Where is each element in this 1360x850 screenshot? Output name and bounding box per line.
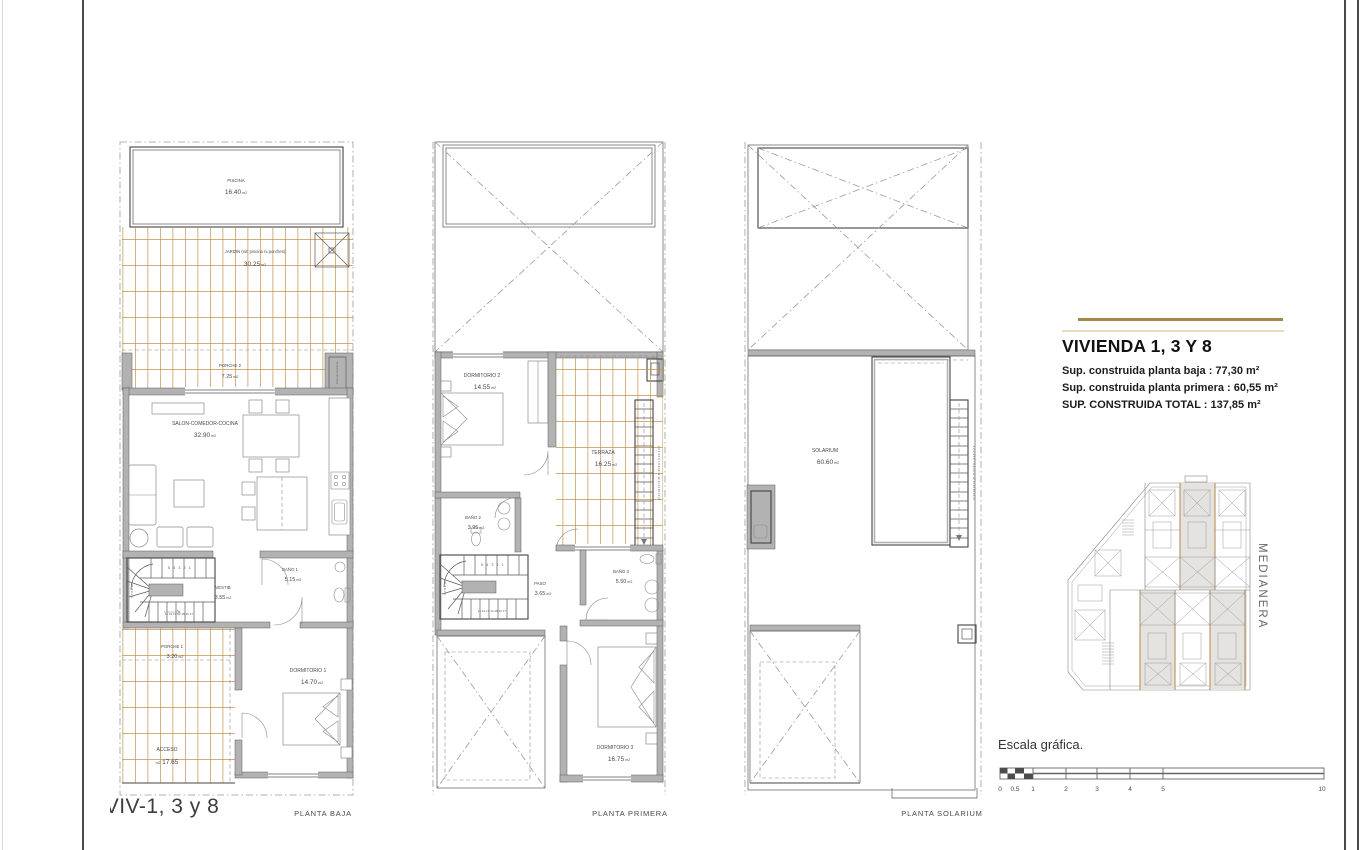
spiral-staircase: 5 4 3 2 1 6 7 8 9 10 11 12 13 14 15 16 1… <box>127 558 215 622</box>
plan-caption: PLANTA SOLARIUM <box>901 809 982 818</box>
surface-total: SUP. CONSTRUIDA TOTAL : 137,85 m² <box>1062 399 1261 411</box>
kitchen-counter <box>329 398 350 535</box>
sink-icon <box>498 518 510 530</box>
stair-numbers: 1 2 3 4 5 6 7 8 9 10 11 12 13 14 15 16 1… <box>972 446 976 501</box>
stair-hatch <box>1122 520 1134 535</box>
sheet-edge-left-faint <box>2 0 3 850</box>
room-area: 14.70m2 <box>301 679 323 686</box>
salon-window <box>185 387 275 396</box>
room-terraza: TERRAZA 16.25m2 1 2 3 4 5 6 7 8 9 10 11 … <box>556 357 663 552</box>
room-area: 5.50m2 <box>616 579 633 585</box>
accent-line-dark <box>1078 318 1283 321</box>
scale-bar-title: Escala gráfica. <box>998 737 1083 752</box>
room-label: SALON-COMEDOR-COCINA <box>172 421 239 427</box>
room-label: PASO <box>534 581 546 586</box>
bed <box>598 633 657 744</box>
parcel-boundary <box>745 142 981 795</box>
kitchen-island <box>242 477 307 530</box>
stair-numbers-bottom: 11 12 13 14 15 16 17 <box>478 609 506 613</box>
room-label: DORMITORIO 1 <box>290 668 327 674</box>
scale-tick: 10 <box>1318 786 1326 793</box>
stair-numbers-side: 6 7 8 9 10 <box>130 584 134 598</box>
scale-tick: 1 <box>1031 786 1035 793</box>
room-acceso: PORCHE 1 3.20m2 ACCESO m217.65 <box>122 628 235 783</box>
unit-symbols-left <box>1075 520 1134 664</box>
void-over-acceso <box>437 630 545 788</box>
drawing-sheet: { "title_block": { "title": "VIVIENDA 1,… <box>0 0 1360 850</box>
stair-numbers: 1 2 3 4 5 6 7 8 9 10 11 12 13 14 15 16 1… <box>657 446 661 501</box>
sheet-border-left <box>82 0 84 850</box>
room-label: ACCESO <box>156 747 177 753</box>
dormitorio1-door <box>242 713 267 738</box>
void-over-acceso <box>750 625 860 783</box>
outdoor-sink-unit <box>747 485 775 549</box>
room-area: 16.40m2 <box>225 189 247 196</box>
room-label: DORMITORIO 2 <box>464 373 501 379</box>
sideboard <box>152 403 204 414</box>
scale-tick: 5 <box>1161 786 1165 793</box>
room-piscina: PISCINA 16.40m2 <box>130 147 343 227</box>
scale-bar-graphic <box>1000 768 1324 779</box>
surface-planta-baja: Sup. construida planta baja : 77,30 m² <box>1062 365 1259 377</box>
room-label: PORCHE 2 <box>219 363 242 368</box>
spiral-staircase: 5 4 3 2 1 6 7 8 9 10 11 12 13 14 15 16 1… <box>440 555 528 619</box>
room-area: 60.60m2 <box>817 459 839 466</box>
bano3-door <box>586 598 608 620</box>
stairwell-opening <box>872 357 950 545</box>
stair-hatch <box>1102 643 1114 664</box>
stair-numbers-top: 5 4 3 2 1 <box>168 566 192 570</box>
room-dormitorio2: DORMITORIO 2 14.55m2 <box>441 352 556 475</box>
key-plan <box>1050 465 1280 705</box>
scale-tick: 0 <box>998 786 1002 793</box>
room-dormitorio3: DORMITORIO 3 16.75m2 <box>560 626 663 783</box>
room-area: 16.25m2 <box>595 461 617 468</box>
dormitorio2-window <box>453 351 503 359</box>
unit-caption: VIV-1, 3 y 8 <box>110 795 219 818</box>
sink-icon <box>498 502 510 514</box>
room-area: 14.55m2 <box>474 384 496 391</box>
accent-line-light <box>1062 330 1284 332</box>
sofa <box>129 465 213 547</box>
void-over-garden <box>435 142 663 352</box>
void-over-garden <box>748 145 968 350</box>
scale-tick: 0.5 <box>1010 786 1019 793</box>
bed <box>283 679 352 758</box>
room-label: DORMITORIO 3 <box>597 745 634 751</box>
plan-planta-solarium: SOLARIUM 60.60m2 1 2 3 4 5 6 7 8 9 10 11… <box>740 135 990 835</box>
dining-table <box>243 400 299 472</box>
bed <box>441 381 503 457</box>
entry-door <box>274 597 302 625</box>
room-salon: SALON-COMEDOR-COCINA 32.90m2 <box>129 398 350 547</box>
plan-planta-baja: PISCINA 16.40m2 JARDIN (sin piscina ni p… <box>110 135 370 835</box>
surface-planta-primera: Sup. construida planta primera : 60,55 m… <box>1062 382 1278 394</box>
scale-tick: 4 <box>1128 786 1132 793</box>
stair-numbers-top: 5 4 3 2 1 <box>481 563 505 567</box>
room-area: 32.90m2 <box>194 432 216 439</box>
room-area: m217.65 <box>156 759 179 766</box>
room-bano1: BAÑO 1 5.15m2 <box>262 559 350 602</box>
room-bano2: BAÑO 2 3.95m2 <box>435 492 521 552</box>
room-solarium: SOLARIUM 60.60m2 1 2 3 4 5 6 7 8 9 10 11… <box>747 350 976 790</box>
dormitorio3-door <box>567 641 591 665</box>
straight-staircase: 1 2 3 4 5 6 7 8 9 10 11 12 13 14 15 16 1… <box>950 400 976 547</box>
plan-caption: PLANTA PRIMERA <box>592 809 668 818</box>
closet-label: Armario lavadora <box>335 361 339 384</box>
sheet-border-right-outer <box>1357 0 1359 850</box>
title-block-title: VIVIENDA 1, 3 Y 8 <box>1062 336 1212 357</box>
dormitorio2-door <box>524 451 548 475</box>
plan-planta-primera: DORMITORIO 2 14.55m2 TERRAZA 16.25m2 1 2… <box>425 135 675 825</box>
scale-bar: 0 0.5 1 2 3 4 5 10 <box>994 758 1339 800</box>
room-label: SOLARIUM <box>812 448 838 454</box>
dormitorio3-window <box>583 774 631 783</box>
room-bano3: BAÑO 3 5.50m2 <box>580 550 663 626</box>
room-area: 16.75m2 <box>608 756 630 763</box>
room-label: BAÑO 3 <box>613 569 629 574</box>
room-label: PISCINA <box>227 178 244 183</box>
stair-numbers-side: 6 7 8 9 10 <box>443 581 447 595</box>
room-label: VESTIB <box>215 585 230 590</box>
medianera-label: MEDIANERA <box>1256 543 1268 663</box>
room-dormitorio1: DORMITORIO 1 14.70m2 <box>242 668 352 758</box>
room-label: BAÑO 1 <box>282 567 298 572</box>
room-vestib: VESTIB 3.55m2 <box>215 585 302 625</box>
room-label: JARDIN (sin piscina ni porches) <box>225 249 286 254</box>
plan-caption: PLANTA BAJA <box>294 809 352 818</box>
sheet-border-right-inner <box>1344 0 1346 850</box>
room-area: 3.55m2 <box>215 595 232 601</box>
scale-tick: 2 <box>1064 786 1068 793</box>
room-area: 3.65m2 <box>535 591 552 597</box>
wardrobe <box>528 361 548 423</box>
scale-tick: 3 <box>1095 786 1099 793</box>
dormitorio1-window <box>268 771 318 779</box>
room-area: 30.25m2 <box>244 261 266 268</box>
section-bracket <box>892 788 977 798</box>
room-label: BAÑO 2 <box>465 515 481 520</box>
chimney-box <box>958 625 976 643</box>
sink-icon <box>335 562 345 572</box>
room-label: TERRAZA <box>591 450 615 456</box>
armario-lavadora-closet: Armario lavadora <box>325 353 353 393</box>
scale-tick-labels: 0 0.5 1 2 3 4 5 10 <box>998 786 1326 793</box>
room-label-porche1: PORCHE 1 <box>161 644 184 649</box>
